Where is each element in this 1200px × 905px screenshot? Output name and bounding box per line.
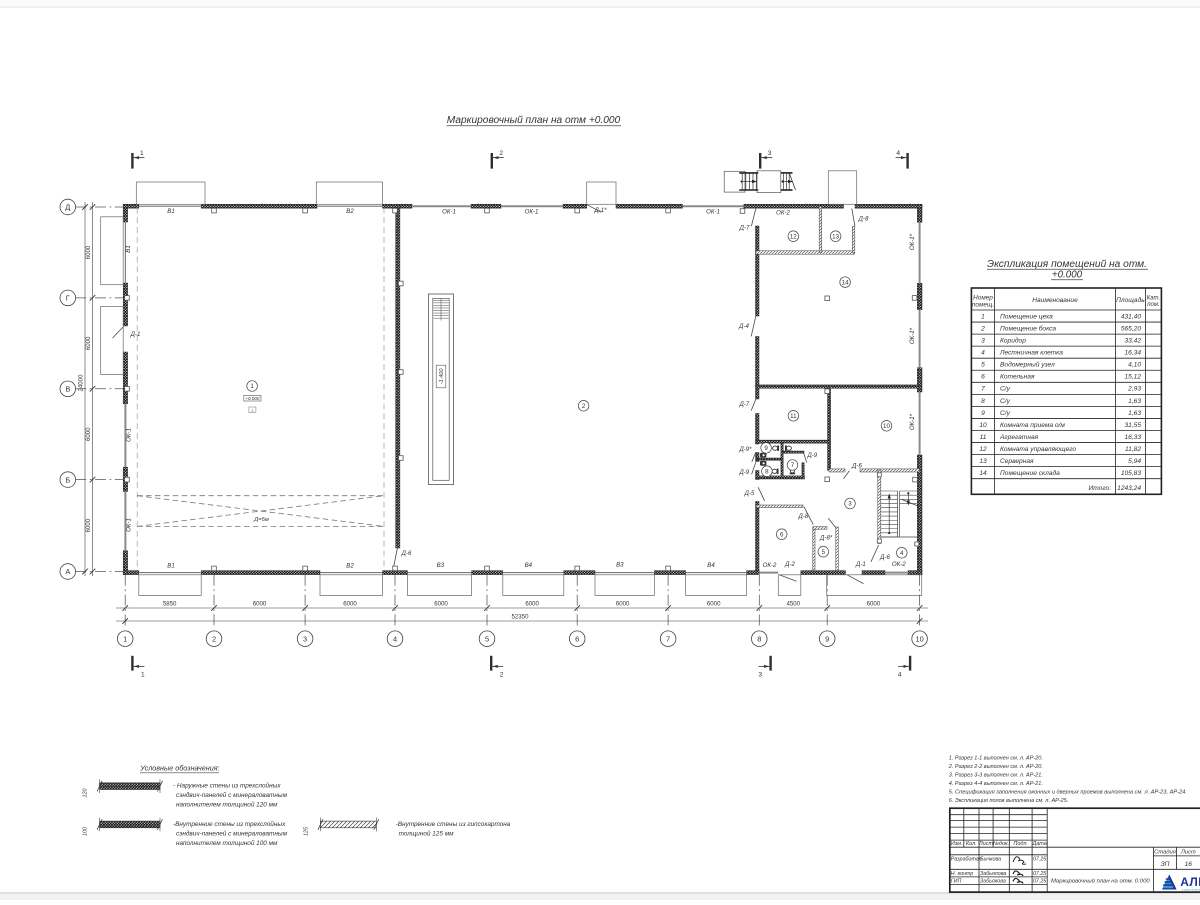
svg-text:3: 3: [981, 338, 985, 345]
svg-text:ОК-1: ОК-1: [706, 208, 720, 215]
svg-text:1,63: 1,63: [1128, 410, 1141, 417]
svg-text:2,93: 2,93: [1127, 386, 1141, 393]
svg-text:С/у: С/у: [1000, 410, 1011, 417]
svg-text:Маркировочный план на отм +0.0: Маркировочный план на отм +0.000: [447, 115, 621, 126]
svg-text:Помещение цеха: Помещение цеха: [1000, 313, 1053, 320]
svg-text:5,94: 5,94: [1128, 458, 1141, 465]
svg-text:3: 3: [768, 150, 772, 157]
svg-text:1: 1: [141, 671, 145, 678]
svg-text:6000: 6000: [434, 601, 448, 608]
svg-text:1,63: 1,63: [1128, 398, 1141, 405]
svg-text:Кат.: Кат.: [1147, 296, 1160, 302]
svg-text:Д-8*: Д-8*: [819, 535, 833, 542]
svg-text:наполнителем толщиной 120 мм: наполнителем толщиной 120 мм: [176, 801, 278, 809]
svg-text:120: 120: [83, 789, 89, 798]
svg-text:ЗП: ЗП: [1161, 861, 1170, 868]
svg-text:Д=5м: Д=5м: [253, 517, 269, 523]
svg-text:В1: В1: [167, 208, 174, 215]
svg-text:ОК-2: ОК-2: [763, 562, 777, 569]
svg-text:Номер: Номер: [973, 295, 993, 302]
svg-text:24000: 24000: [78, 374, 85, 392]
svg-text:В3: В3: [437, 562, 445, 569]
svg-text:3: 3: [758, 671, 762, 678]
svg-text:14: 14: [842, 279, 849, 286]
svg-text:А: А: [65, 567, 70, 576]
svg-text:1: 1: [250, 383, 254, 390]
svg-text:1: 1: [251, 408, 254, 413]
svg-text:2: 2: [582, 403, 586, 410]
svg-text:2: 2: [212, 634, 216, 643]
svg-text:1: 1: [123, 634, 127, 643]
svg-text:Д-7: Д-7: [738, 401, 749, 408]
svg-text:Изм.: Изм.: [951, 841, 963, 847]
svg-text:10: 10: [979, 422, 987, 429]
svg-text:8: 8: [981, 398, 985, 405]
svg-text:100: 100: [83, 827, 89, 836]
svg-text:4: 4: [981, 350, 985, 357]
svg-text:9: 9: [764, 445, 768, 452]
svg-text:Итого:: Итого:: [1089, 485, 1112, 492]
svg-text:52350: 52350: [512, 613, 530, 620]
svg-text:Д-8: Д-8: [858, 215, 869, 222]
svg-text:Дата: Дата: [1031, 841, 1047, 847]
svg-text:2: 2: [500, 671, 504, 678]
svg-text:В2: В2: [346, 208, 354, 215]
svg-text:1. Разрез 1-1 выполнен см. л.: 1. Разрез 1-1 выполнен см. л. АР-20.: [949, 756, 1043, 762]
svg-text:7: 7: [981, 386, 985, 393]
svg-text:6000: 6000: [867, 601, 881, 608]
svg-text:105,83: 105,83: [1121, 470, 1142, 477]
svg-text:Н. контр: Н. контр: [951, 871, 973, 877]
svg-text:ОК-2: ОК-2: [892, 561, 906, 568]
svg-text:Лист: Лист: [978, 841, 994, 847]
svg-text:6000: 6000: [707, 601, 721, 608]
svg-text:-1.400: -1.400: [439, 368, 445, 385]
svg-text:ОК-1: ОК-1: [125, 518, 132, 532]
svg-text:Д-4: Д-4: [738, 323, 749, 330]
svg-text:7: 7: [666, 634, 670, 643]
svg-text:Д-1: Д-1: [130, 331, 141, 338]
svg-text:Г: Г: [66, 294, 70, 303]
svg-text:1: 1: [981, 313, 985, 320]
svg-text:Д-9: Д-9: [806, 452, 817, 459]
svg-text:Экспликация помещений на отм.: Экспликация помещений на отм.: [987, 259, 1147, 270]
svg-text:Комната приема о/м: Комната приема о/м: [1000, 422, 1065, 429]
svg-text:4500: 4500: [786, 601, 800, 608]
svg-text:ОК-1: ОК-1: [525, 208, 539, 215]
svg-text:Д-7: Д-7: [739, 225, 750, 232]
svg-text:Разработал: Разработал: [951, 857, 982, 863]
svg-text:Д-1: Д-1: [855, 561, 866, 568]
svg-text:9: 9: [981, 410, 985, 417]
svg-text:Стадия: Стадия: [1154, 850, 1176, 856]
svg-text:В4: В4: [525, 562, 533, 569]
svg-text:ОК-1*: ОК-1*: [909, 233, 916, 250]
svg-text:Наименование: Наименование: [1032, 297, 1078, 304]
svg-text:5850: 5850: [163, 601, 177, 608]
svg-text:Д-9*: Д-9*: [738, 446, 752, 453]
svg-text:6: 6: [981, 374, 985, 381]
svg-text:Д-1*: Д-1*: [593, 207, 607, 214]
svg-text:125: 125: [304, 826, 310, 836]
svg-text:ОК-1*: ОК-1*: [909, 413, 916, 430]
svg-text:Лист: Лист: [1180, 850, 1196, 856]
svg-text:Маркировочный план на отм. 0.0: Маркировочный план на отм. 0.000: [1051, 877, 1150, 884]
svg-text:В4: В4: [707, 562, 715, 569]
svg-text:14: 14: [979, 470, 987, 477]
svg-text:В1: В1: [125, 245, 132, 252]
svg-text:Условные обозначения:: Условные обозначения:: [139, 764, 219, 773]
svg-text:В1: В1: [167, 563, 174, 570]
svg-text:-Внутренние стены из трехслойн: -Внутренние стены из трехслойных: [173, 820, 286, 828]
svg-text:Забьялова: Забьялова: [980, 871, 1006, 877]
svg-text:Подп.: Подп.: [1013, 841, 1028, 847]
svg-text:ГИП: ГИП: [951, 879, 962, 885]
svg-text:4. Разрез 4-4 выполнен см. л.: 4. Разрез 4-4 выполнен см. л. АР-21.: [949, 781, 1043, 787]
svg-text:6000: 6000: [253, 601, 267, 608]
svg-text:Серверная: Серверная: [1000, 458, 1034, 465]
svg-text:07.25: 07.25: [1033, 871, 1046, 877]
svg-text:сэндвич-панелей с минераловатн: сэндвич-панелей с минераловатным: [176, 791, 288, 799]
svg-text:Комната управляющего: Комната управляющего: [1000, 446, 1076, 453]
svg-text:7: 7: [791, 462, 795, 469]
svg-text:5: 5: [822, 549, 826, 556]
svg-text:6000: 6000: [525, 601, 539, 608]
svg-text:толщиной 125 мм: толщиной 125 мм: [399, 829, 454, 837]
svg-text:Площадь: Площадь: [1116, 296, 1145, 304]
svg-text:4,10: 4,10: [1128, 362, 1141, 369]
svg-text:Коридор: Коридор: [1000, 337, 1026, 345]
svg-text:В3: В3: [616, 561, 624, 568]
svg-text:07.25: 07.25: [1033, 857, 1046, 863]
svg-text:12: 12: [979, 446, 987, 453]
svg-text:Бычкова: Бычкова: [980, 857, 1001, 863]
svg-text:3: 3: [848, 501, 852, 508]
svg-text:пом.: пом.: [1147, 302, 1159, 308]
svg-text:13: 13: [832, 233, 839, 240]
svg-text:07.25: 07.25: [1033, 879, 1046, 885]
svg-text:1: 1: [140, 150, 144, 157]
svg-text:2: 2: [499, 150, 503, 157]
svg-text:2. Разрез 2-2 выполнен см. л.: 2. Разрез 2-2 выполнен см. л. АР-20.: [948, 764, 1043, 770]
svg-text:8: 8: [757, 634, 761, 643]
svg-text:Лестничная клетка: Лестничная клетка: [999, 350, 1063, 357]
svg-text:В2: В2: [346, 563, 354, 570]
svg-text:4: 4: [896, 150, 900, 157]
svg-text:6. Экспликация полов выполнена: 6. Экспликация полов выполнена см. л. АР…: [949, 798, 1069, 804]
svg-text:15,12: 15,12: [1124, 374, 1141, 381]
svg-text:Д: Д: [65, 203, 70, 212]
svg-text:+0.000: +0.000: [245, 396, 260, 401]
svg-text:наполнителем толщиной 100 мм: наполнителем толщиной 100 мм: [176, 839, 278, 847]
svg-text:16: 16: [1185, 861, 1193, 868]
svg-text:6: 6: [575, 634, 579, 643]
svg-text:431,40: 431,40: [1121, 313, 1142, 320]
svg-text:6000: 6000: [343, 601, 357, 608]
svg-text:33,42: 33,42: [1124, 338, 1141, 345]
svg-text:Котельная: Котельная: [1000, 374, 1035, 381]
svg-text:6000: 6000: [85, 336, 92, 350]
svg-text:Б: Б: [65, 475, 70, 484]
svg-text:16,34: 16,34: [1124, 350, 1141, 357]
svg-text:4: 4: [900, 550, 904, 557]
svg-text:Помещение бокса: Помещение бокса: [1000, 324, 1056, 332]
svg-text:С/у: С/у: [1000, 398, 1011, 405]
svg-text:сэндвич-панелей с минераловатн: сэндвич-панелей с минераловатным: [176, 829, 288, 837]
svg-text:Водомерный узел: Водомерный узел: [1000, 361, 1055, 369]
svg-text:6000: 6000: [85, 427, 92, 441]
svg-text:Забьякова: Забьякова: [980, 879, 1006, 885]
svg-text:11: 11: [980, 434, 987, 441]
svg-text:-Внутренние стены из гипсокарт: -Внутренние стены из гипсокартона: [396, 821, 511, 828]
svg-text:№док.: №док.: [993, 841, 1009, 847]
svg-text:строительная компания: строительная компания: [1182, 888, 1200, 892]
svg-text:11,82: 11,82: [1125, 446, 1141, 453]
svg-text:Д-8: Д-8: [798, 513, 809, 520]
svg-text:Д-6: Д-6: [401, 550, 412, 557]
svg-text:С/у: С/у: [1000, 386, 1011, 393]
svg-text:11: 11: [790, 413, 797, 420]
svg-text:Кол.: Кол.: [966, 841, 977, 847]
svg-text:- Наружные стены из трехслойны: - Наружные стены из трехслойных: [173, 782, 281, 790]
svg-text:31,55: 31,55: [1124, 422, 1141, 429]
svg-text:ОК-2: ОК-2: [776, 210, 790, 217]
svg-text:+0.000: +0.000: [1052, 269, 1083, 280]
svg-text:Д-6: Д-6: [879, 554, 890, 561]
svg-text:3: 3: [303, 634, 307, 643]
svg-text:10: 10: [883, 423, 890, 430]
svg-text:16,33: 16,33: [1124, 434, 1141, 441]
svg-text:5: 5: [485, 634, 489, 643]
svg-text:Д-5: Д-5: [744, 490, 755, 497]
svg-text:В: В: [65, 385, 70, 394]
svg-text:6000: 6000: [616, 601, 630, 608]
svg-text:ОК-1: ОК-1: [125, 428, 132, 442]
svg-text:Д-9: Д-9: [738, 469, 749, 476]
svg-text:6000: 6000: [85, 245, 92, 259]
svg-text:ОК-1: ОК-1: [442, 208, 456, 215]
svg-text:Д-6: Д-6: [851, 463, 862, 470]
svg-text:3. Разрез 3-3 выполнен см. л.: 3. Разрез 3-3 выполнен см. л. АР-21.: [949, 773, 1043, 779]
svg-text:1243,24: 1243,24: [1117, 485, 1141, 492]
svg-text:5: 5: [981, 362, 985, 369]
svg-text:Д-2: Д-2: [784, 561, 795, 568]
svg-text:13: 13: [979, 458, 987, 465]
svg-text:8: 8: [765, 468, 769, 475]
svg-text:ОК-1*: ОК-1*: [909, 327, 916, 344]
svg-text:Помещение склада: Помещение склада: [1000, 469, 1060, 477]
svg-text:12: 12: [790, 233, 797, 240]
svg-text:10: 10: [915, 634, 923, 643]
svg-text:4: 4: [898, 671, 902, 678]
svg-text:4: 4: [393, 634, 397, 643]
svg-text:5. Спецификация заполнения око: 5. Спецификация заполнения оконных и две…: [949, 789, 1187, 795]
svg-text:Агрегатная: Агрегатная: [999, 434, 1039, 441]
svg-text:2: 2: [980, 325, 985, 332]
svg-text:6: 6: [780, 531, 784, 538]
svg-text:9: 9: [825, 634, 829, 643]
svg-text:6000: 6000: [85, 518, 92, 532]
svg-text:помещ.: помещ.: [972, 302, 994, 309]
svg-text:565,20: 565,20: [1121, 325, 1142, 332]
